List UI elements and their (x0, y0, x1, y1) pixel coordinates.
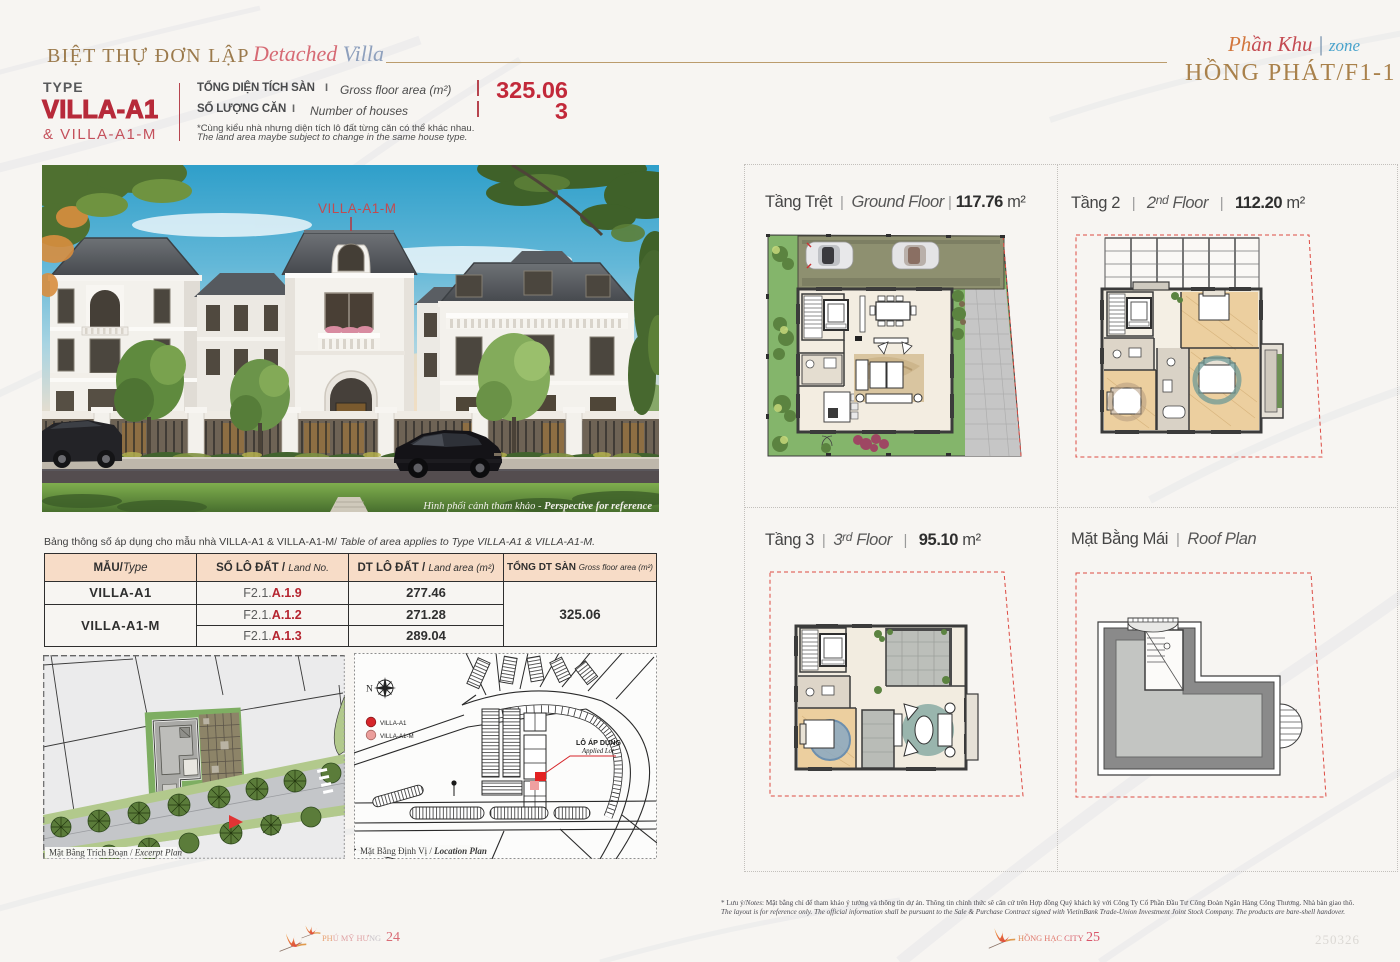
svg-text:VILLA-A1: VILLA-A1 (380, 720, 407, 727)
svg-text:LÔ ÁP DỤNG: LÔ ÁP DỤNG (576, 738, 621, 747)
svg-text:Hình phối cảnh tham khảo - Per: Hình phối cảnh tham khảo - Perspective f… (422, 501, 652, 512)
svg-text:VILLA-A1-M: VILLA-A1-M (318, 201, 397, 216)
svg-text:N: N (366, 685, 373, 695)
svg-text:Applied Lot: Applied Lot (581, 748, 615, 755)
svg-text:Mặt Bằng Định Vị / Location Pl: Mặt Bằng Định Vị / Location Plan (360, 846, 487, 856)
svg-text:VILLA-A1-M: VILLA-A1-M (380, 733, 414, 740)
svg-text:Mặt Bằng Trích Đoạn / Excerpt: Mặt Bằng Trích Đoạn / Excerpt Plan (49, 848, 182, 858)
